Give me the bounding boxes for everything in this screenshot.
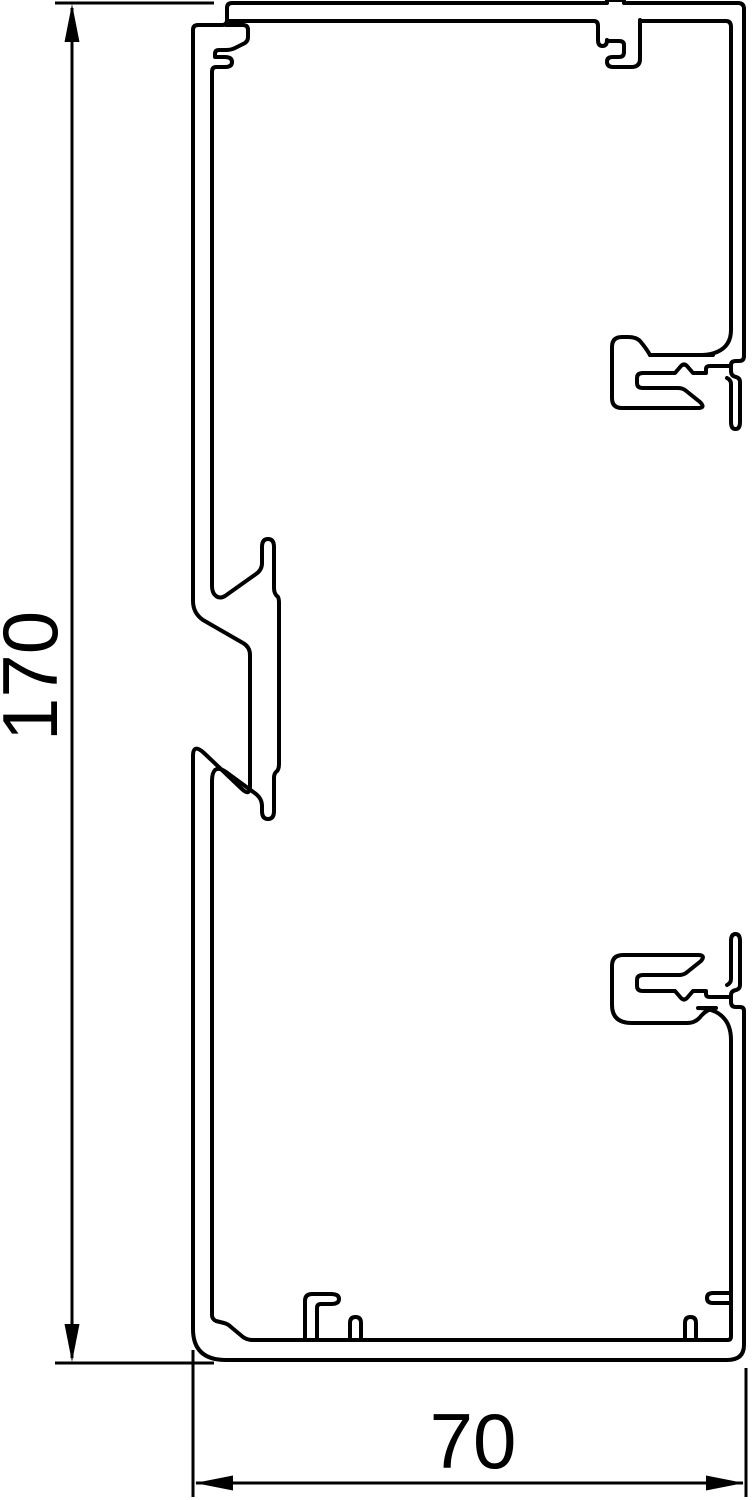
height-dimension-label: 170 [0, 611, 74, 741]
wall-rib-right [707, 1293, 731, 1303]
profile-cross-section-drawing: 170 70 [0, 0, 753, 1500]
arrow-right-icon [706, 1476, 744, 1491]
cover-clip-slot-bottom [637, 975, 729, 1000]
floor-rib-right [685, 1317, 696, 1340]
cover-clip-slot-top [637, 365, 729, 389]
arrow-down-icon [65, 1324, 80, 1362]
lid-hook [607, 20, 640, 67]
height-dimension: 170 [0, 3, 214, 1363]
width-dimension: 70 [193, 1350, 746, 1497]
drawing-canvas: 170 70 [0, 0, 753, 1500]
right-wall-inner-top [640, 21, 731, 355]
lid-inner-line [227, 21, 607, 46]
profile-geometry [193, 0, 744, 1360]
arrow-up-icon [65, 4, 80, 42]
profile-outline-inner [212, 25, 731, 1340]
floor-rib-left [350, 1317, 361, 1340]
floor-hook [305, 1294, 339, 1340]
profile-outline-outer [193, 0, 744, 1360]
arrow-left-icon [195, 1476, 233, 1491]
width-dimension-label: 70 [430, 1397, 517, 1485]
